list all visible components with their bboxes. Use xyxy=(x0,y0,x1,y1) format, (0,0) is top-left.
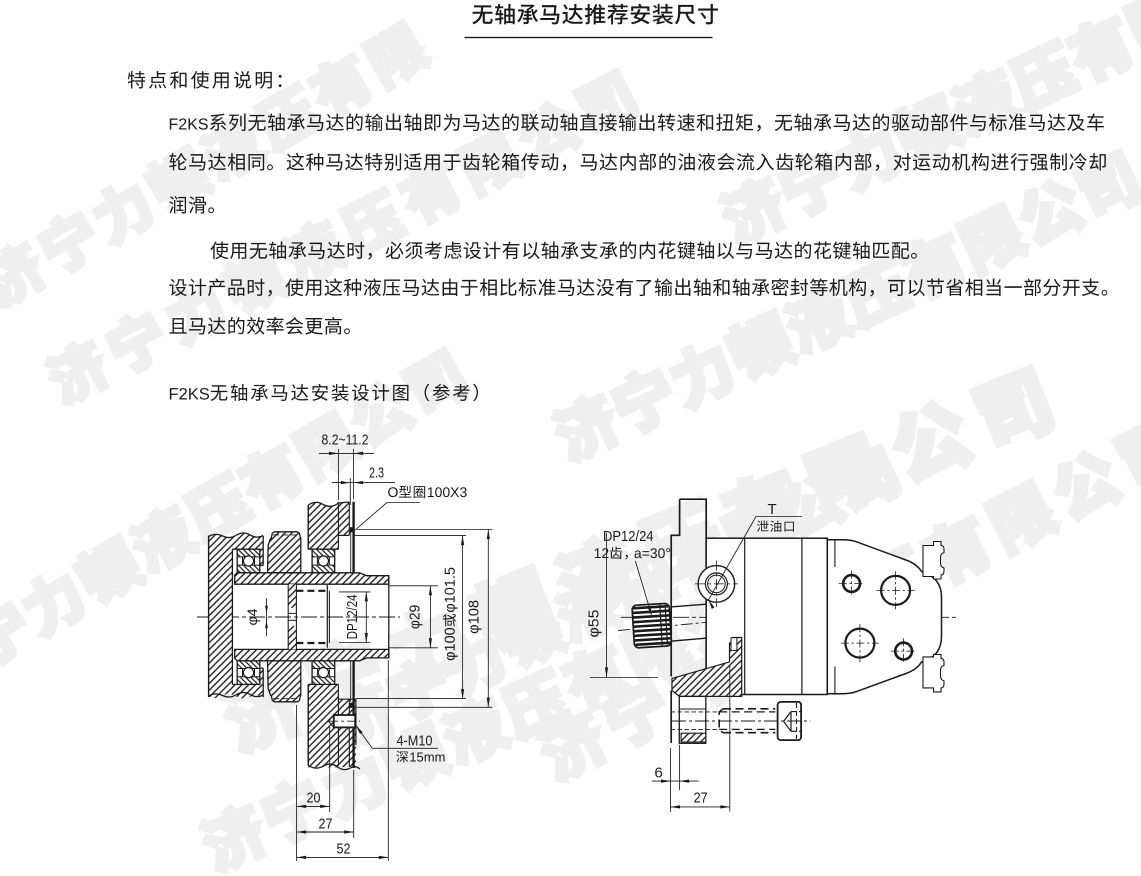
svg-text:DP12/24: DP12/24 xyxy=(345,594,361,639)
svg-text:φ55: φ55 xyxy=(586,610,603,638)
svg-text:φ108: φ108 xyxy=(466,600,483,634)
svg-text:DP12/24: DP12/24 xyxy=(603,528,654,545)
svg-text:27: 27 xyxy=(694,790,708,807)
svg-text:27: 27 xyxy=(319,816,333,833)
svg-text:φ4: φ4 xyxy=(244,608,260,625)
svg-text:52: 52 xyxy=(337,841,351,858)
svg-text:T: T xyxy=(768,501,777,518)
svg-text:6: 6 xyxy=(654,765,662,782)
svg-text:2.3: 2.3 xyxy=(369,465,384,482)
svg-text:4-M10: 4-M10 xyxy=(397,733,433,750)
svg-text:20: 20 xyxy=(307,790,321,807)
svg-text:φ29: φ29 xyxy=(407,605,424,630)
svg-text:8.2~11.2: 8.2~11.2 xyxy=(322,432,369,449)
